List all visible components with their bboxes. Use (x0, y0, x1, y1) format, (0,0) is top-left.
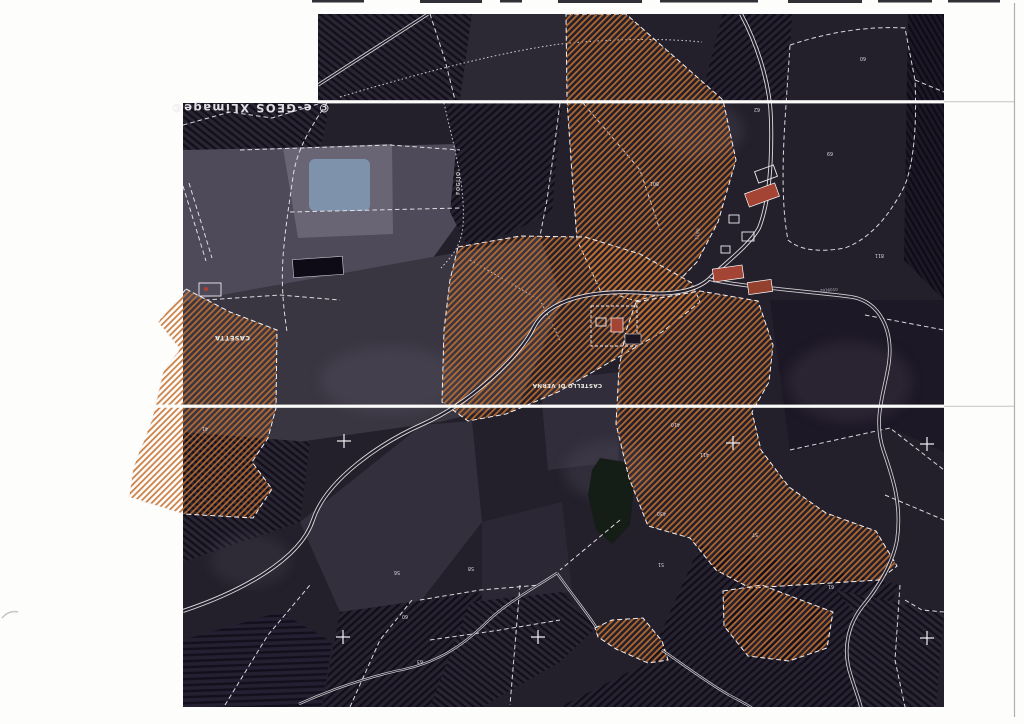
pond (309, 159, 370, 211)
parcel-number-label: 801 (650, 180, 659, 186)
scanner-top-edge-marks (312, 0, 1000, 3)
parcel-number-label: 811 (875, 252, 884, 258)
pencil-mark (2, 612, 18, 618)
parcel-number-label: 62 (754, 106, 760, 112)
parcel-number-label: 41 (202, 425, 208, 431)
parcel-number-label: 57 (752, 531, 758, 537)
place-label-castello: CASTELLO DI VERNA (532, 382, 602, 388)
parcel-number-label: 56 (394, 569, 400, 575)
parcel-number-label: 411 (700, 451, 709, 457)
parcel-number-label: 410 (671, 421, 680, 427)
parcel-number-label: 61 (828, 583, 834, 589)
parcel-number-label: 60 (402, 613, 408, 619)
parcel-number-label: 63 (417, 658, 423, 664)
parcel-number-label: 58 (468, 565, 474, 571)
copyright-watermark: © e-GEOS XLimage© (170, 101, 330, 115)
parcel-number-label: 69 (827, 150, 833, 156)
marked-parcel-west (129, 289, 277, 518)
scanned-map-page: © e-GEOS XLimage© CASETTA CASTELLO DI VE… (0, 0, 1024, 724)
parcel-number-label: 51 (658, 561, 664, 567)
place-label-casetta: CASETTA (215, 334, 250, 342)
parcel-number-label: 430 (657, 510, 666, 516)
cadastral-orthophoto-map: © e-GEOS XLimage© CASETTA CASTELLO DI VE… (0, 0, 1024, 724)
sheet-boundary-label-foglio: FOGLIO (456, 172, 462, 195)
parcel-number-label: 60 (860, 55, 866, 61)
